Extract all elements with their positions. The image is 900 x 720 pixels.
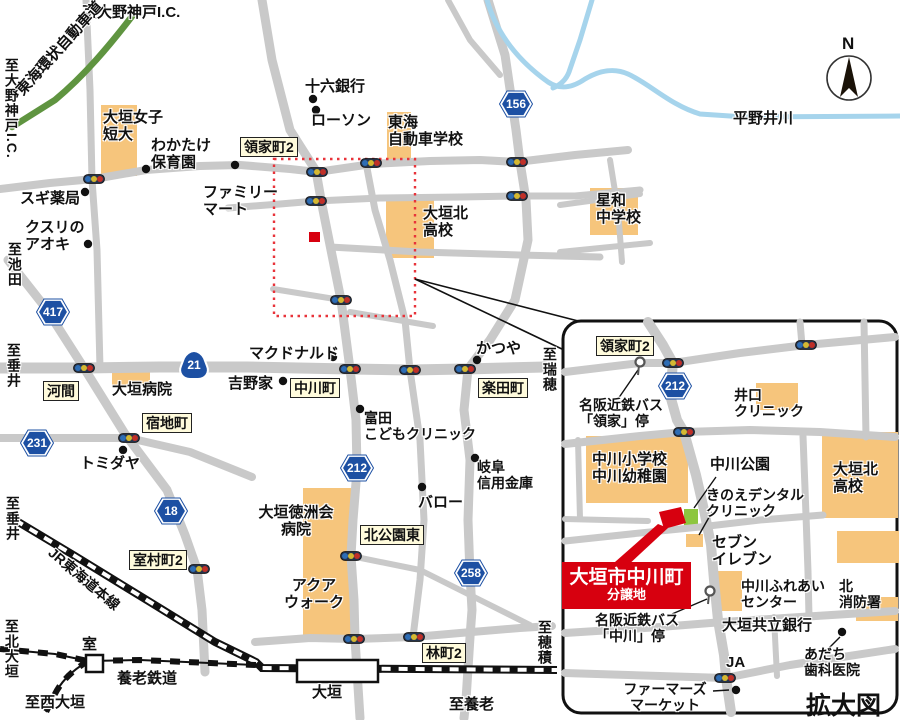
compass-north-label: N <box>842 34 854 54</box>
route-number: 212 <box>340 453 374 483</box>
route-number: 212 <box>658 371 692 401</box>
route-shield-258: 258 <box>454 558 488 588</box>
traffic-signal-icon <box>74 364 95 373</box>
traffic-signal-icon <box>507 192 528 201</box>
label-inset-ogaki-kita-hs: 大垣北 高校 <box>833 462 878 496</box>
label-bus-nakagawa-stop: 名阪近鉄バス 「中川」停 <box>595 613 679 645</box>
label-valor: バロー <box>418 495 463 512</box>
label-mcdonalds: マクドナルド <box>249 346 339 363</box>
label-bus-ryoke-stop: 名阪近鉄バス 「領家」停 <box>579 398 663 430</box>
property-site-type: 分譲地 <box>562 588 691 602</box>
route-number: 258 <box>454 558 488 588</box>
route-number: 18 <box>154 496 188 526</box>
label-ryokecho2: 領家町2 <box>240 137 298 157</box>
traffic-signal-icon <box>340 365 361 374</box>
label-hayashicho2: 林町2 <box>422 643 466 663</box>
label-kita-koen-higashi: 北公園東 <box>360 525 424 545</box>
label-tokai-driving-school: 東海 自動車学校 <box>388 115 463 149</box>
traffic-signal-icon <box>663 359 684 368</box>
label-tomidaya: トミダヤ <box>80 456 140 473</box>
label-dest-ono-godo-ic-left: 至大野神戸I.C. <box>3 58 19 159</box>
label-gakudencho: 楽田町 <box>478 378 528 398</box>
label-iguchi-clinic: 井口 クリニック <box>734 388 804 420</box>
traffic-signal-icon <box>400 366 421 375</box>
route-shield-231: 231 <box>20 428 54 458</box>
label-adachi-dental: あだち 歯科医院 <box>804 647 860 679</box>
label-wakatake-nursery: わかたけ 保育園 <box>151 138 211 172</box>
property-site-name: 大垣市中川町 <box>562 568 691 588</box>
traffic-signal-icon <box>674 428 695 437</box>
label-tomita-kids-clinic: 富田 こどもクリニック <box>364 411 476 443</box>
label-ja: JA <box>726 655 745 672</box>
label-sugi-pharmacy: スギ薬局 <box>20 191 80 208</box>
label-kusuri-no-aoki: クスリの アオキ <box>25 220 85 254</box>
label-nakagawa-fureai-center: 中川ふれあい センター <box>741 579 825 611</box>
route-number: 156 <box>499 89 533 119</box>
route-shield-212: 212 <box>658 371 692 401</box>
route-number: 21 <box>177 349 211 381</box>
route-shield-21: 21 <box>177 349 211 381</box>
map-canvas: 至大野神戸I.C.至大野神戸I.C.東海環状自動車道十六銀行ローソン東海 自動車… <box>0 0 900 720</box>
label-seiwa-jhs: 星和 中学校 <box>596 193 641 227</box>
inset-caption: 拡大図 <box>806 686 881 720</box>
label-ogaki-kita-hs: 大垣北 高校 <box>423 206 468 240</box>
label-family-mart: ファミリー マート <box>203 185 278 219</box>
traffic-signal-icon <box>507 158 528 167</box>
label-seven-eleven: セブン イレブン <box>712 535 772 569</box>
label-farmers-market: ファーマーズ マーケット <box>616 682 714 714</box>
label-aqua-walk: アクア ウォーク <box>283 578 345 612</box>
label-dest-mizuho: 至瑞穂 <box>541 347 557 392</box>
traffic-signal-icon <box>306 197 327 206</box>
label-nakagawa-elementary-kindergarten: 中川小学校 中川幼稚園 <box>592 452 667 486</box>
label-shukuchicho: 宿地町 <box>142 413 192 433</box>
label-ogaki-hospital: 大垣病院 <box>112 382 172 399</box>
traffic-signal-icon <box>119 434 140 443</box>
traffic-signal-icon <box>189 565 210 574</box>
route-number: 231 <box>20 428 54 458</box>
label-dest-nishi-ogaki: 至西大垣 <box>25 695 85 712</box>
compass-icon: N <box>820 34 880 106</box>
label-ogaki-kyoritsu-bank: 大垣共立銀行 <box>722 618 812 635</box>
label-nakagawacho: 中川町 <box>290 378 340 398</box>
route-number: 417 <box>36 297 70 327</box>
label-juroku-bank: 十六銀行 <box>305 79 365 96</box>
label-dest-hozumi: 至穂積 <box>536 620 552 665</box>
label-dest-kita-ogaki: 至北大垣 <box>3 619 19 679</box>
label-dest-tarui-south: 至垂井 <box>4 496 20 541</box>
traffic-signal-icon <box>84 175 105 184</box>
traffic-signal-icon <box>455 365 476 374</box>
label-ogaki-station-label: 大垣 <box>312 685 342 702</box>
traffic-signal-icon <box>341 552 362 561</box>
route-shield-212: 212 <box>340 453 374 483</box>
property-site-box: 大垣市中川町 分譲地 <box>562 562 691 609</box>
route-shield-417: 417 <box>36 297 70 327</box>
label-kinoe-dental-clinic: きのえデンタル クリニック <box>706 488 804 520</box>
label-yoro-railway-label: 養老鉄道 <box>117 671 177 688</box>
label-inset-ryokecho2: 領家町2 <box>596 336 654 356</box>
label-yoshinoya: 吉野家 <box>228 376 273 393</box>
label-dest-yoro: 至養老 <box>449 697 494 714</box>
traffic-signal-icon <box>715 674 736 683</box>
traffic-signal-icon <box>796 341 817 350</box>
label-katsuya: かつや <box>476 341 521 358</box>
traffic-signal-icon <box>404 633 425 642</box>
label-kama: 河間 <box>43 381 79 401</box>
label-kita-fire-station: 北 消防署 <box>839 579 881 611</box>
label-dest-ikeda: 至池田 <box>6 242 22 287</box>
traffic-signal-icon <box>307 168 328 177</box>
label-lawson: ローソン <box>311 113 371 130</box>
label-muromuracho2: 室村町2 <box>129 550 187 570</box>
route-shield-18: 18 <box>154 496 188 526</box>
label-dest-tarui: 至垂井 <box>5 343 21 388</box>
route-shield-156: 156 <box>499 89 533 119</box>
traffic-signal-icon <box>361 159 382 168</box>
label-gifu-shinkin-bank: 岐阜 信用金庫 <box>477 460 533 492</box>
traffic-signal-icon <box>344 635 365 644</box>
label-hiranoi-river: 平野井川 <box>733 111 793 128</box>
label-muro-station-label: 室 <box>82 637 97 654</box>
traffic-signal-icon <box>331 296 352 305</box>
label-nakagawa-park: 中川公園 <box>710 457 770 474</box>
label-tokushukai-hospital: 大垣徳洲会 病院 <box>248 505 344 539</box>
